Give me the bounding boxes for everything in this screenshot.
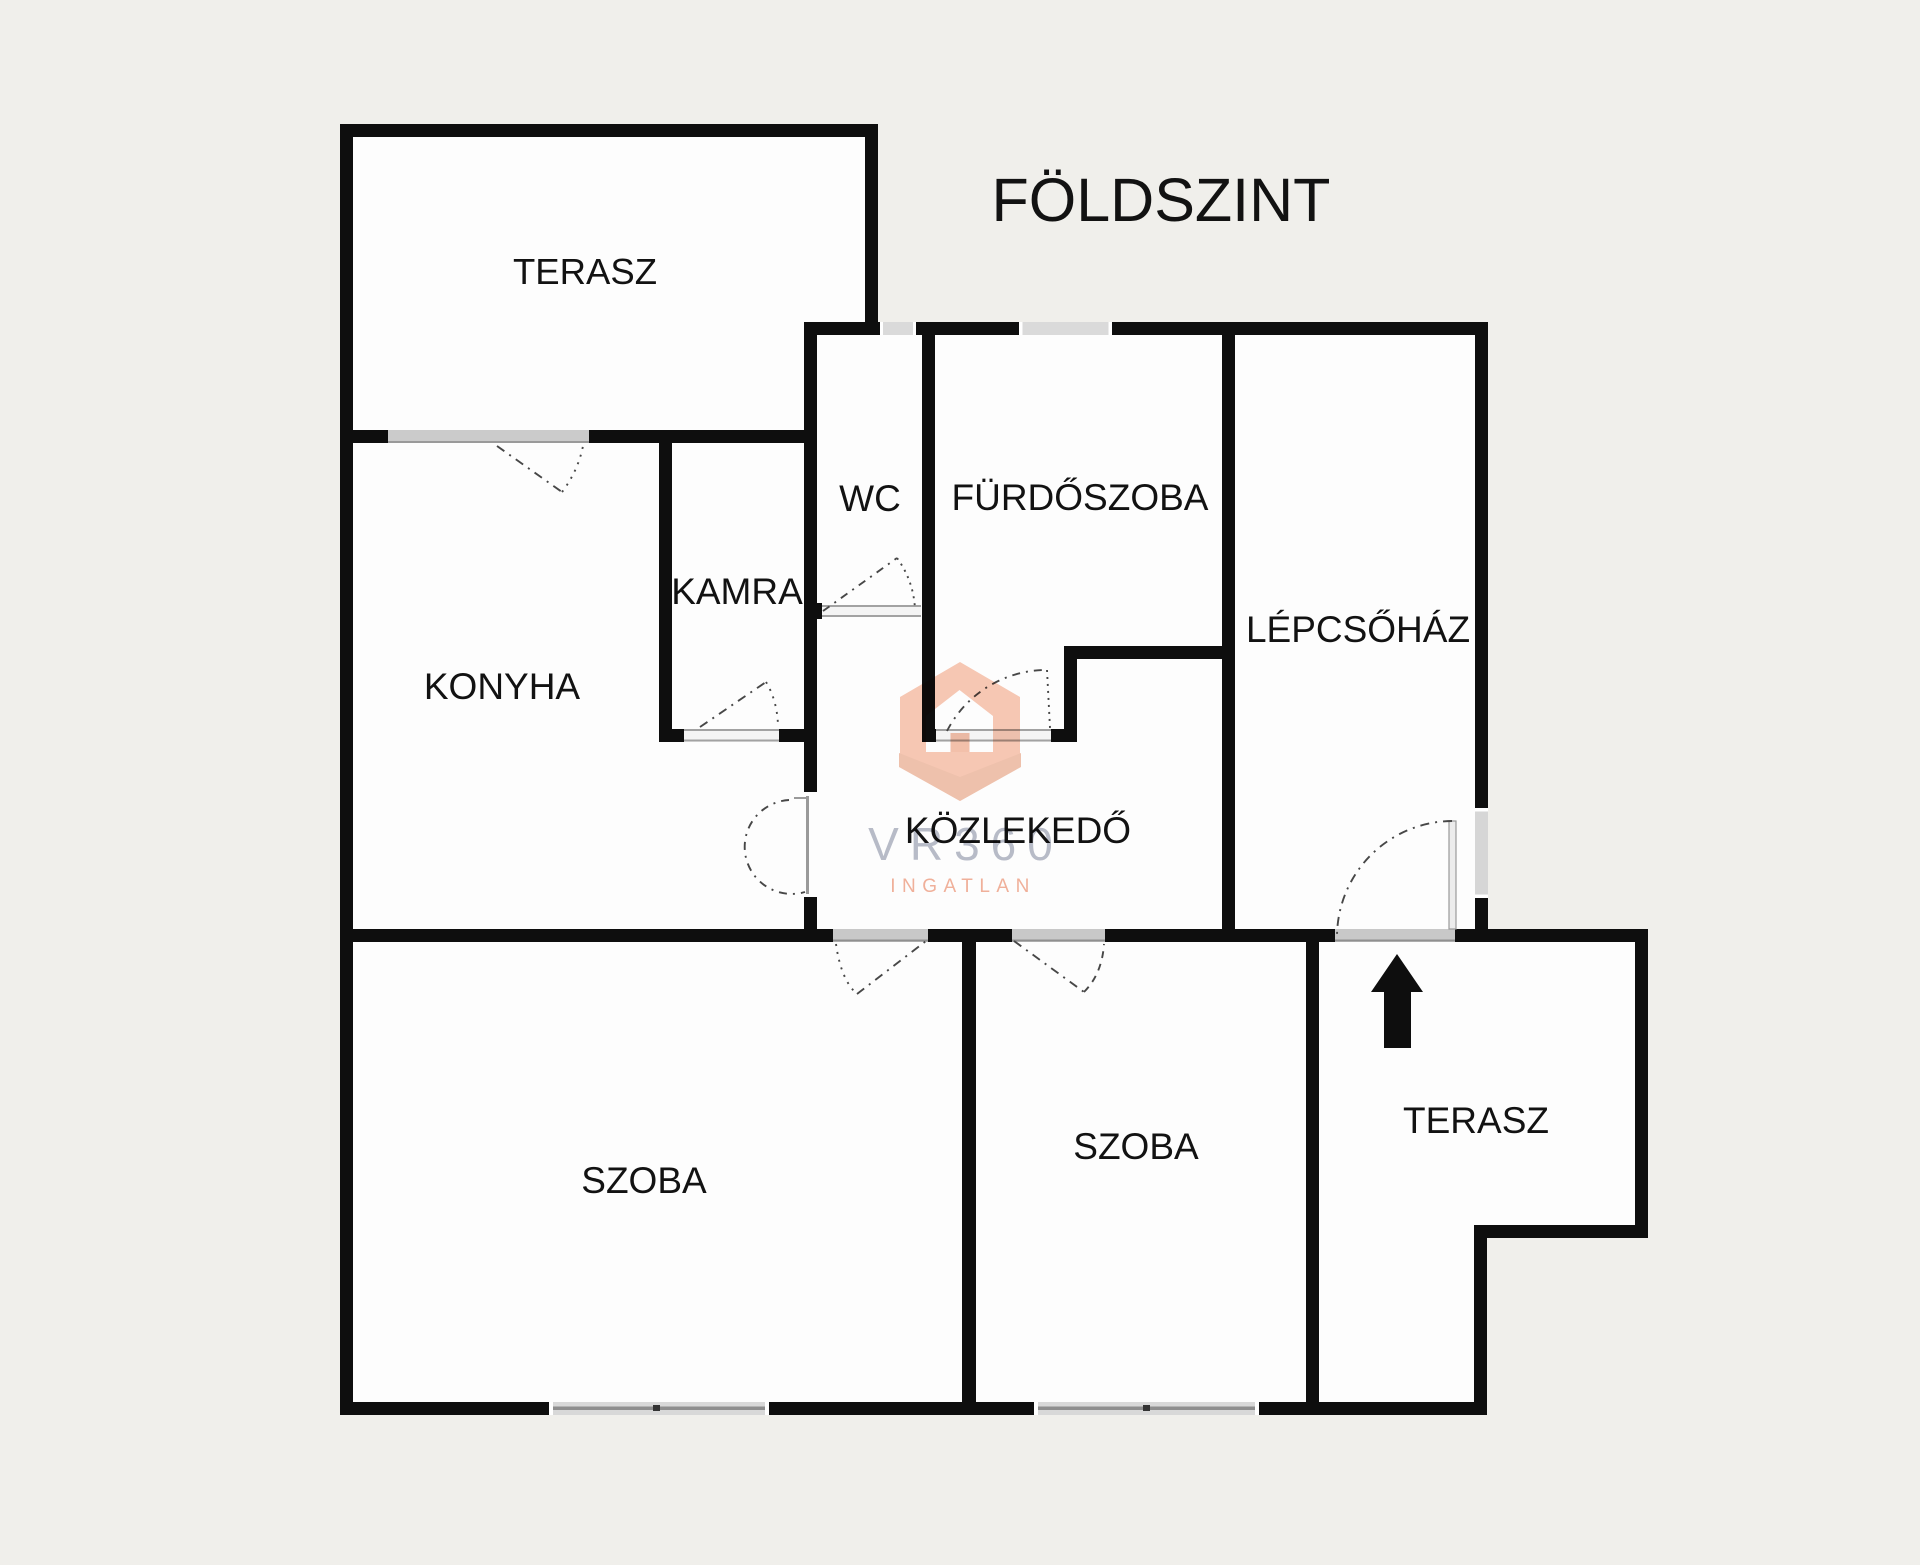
svg-text:KAMRA: KAMRA [671, 571, 803, 612]
svg-text:FÜRDŐSZOBA: FÜRDŐSZOBA [952, 477, 1209, 518]
svg-text:VR360: VR360 [868, 818, 1064, 870]
svg-text:TERASZ: TERASZ [1403, 1100, 1549, 1141]
svg-text:LÉPCSŐHÁZ: LÉPCSŐHÁZ [1246, 609, 1470, 650]
svg-text:INGATLAN: INGATLAN [890, 876, 1036, 897]
svg-text:SZOBA: SZOBA [581, 1160, 707, 1201]
svg-text:SZOBA: SZOBA [1073, 1126, 1199, 1167]
svg-text:TERASZ: TERASZ [513, 251, 657, 292]
svg-text:WC: WC [839, 478, 901, 519]
svg-text:KONYHA: KONYHA [424, 666, 581, 707]
svg-text:FÖLDSZINT: FÖLDSZINT [992, 166, 1331, 234]
